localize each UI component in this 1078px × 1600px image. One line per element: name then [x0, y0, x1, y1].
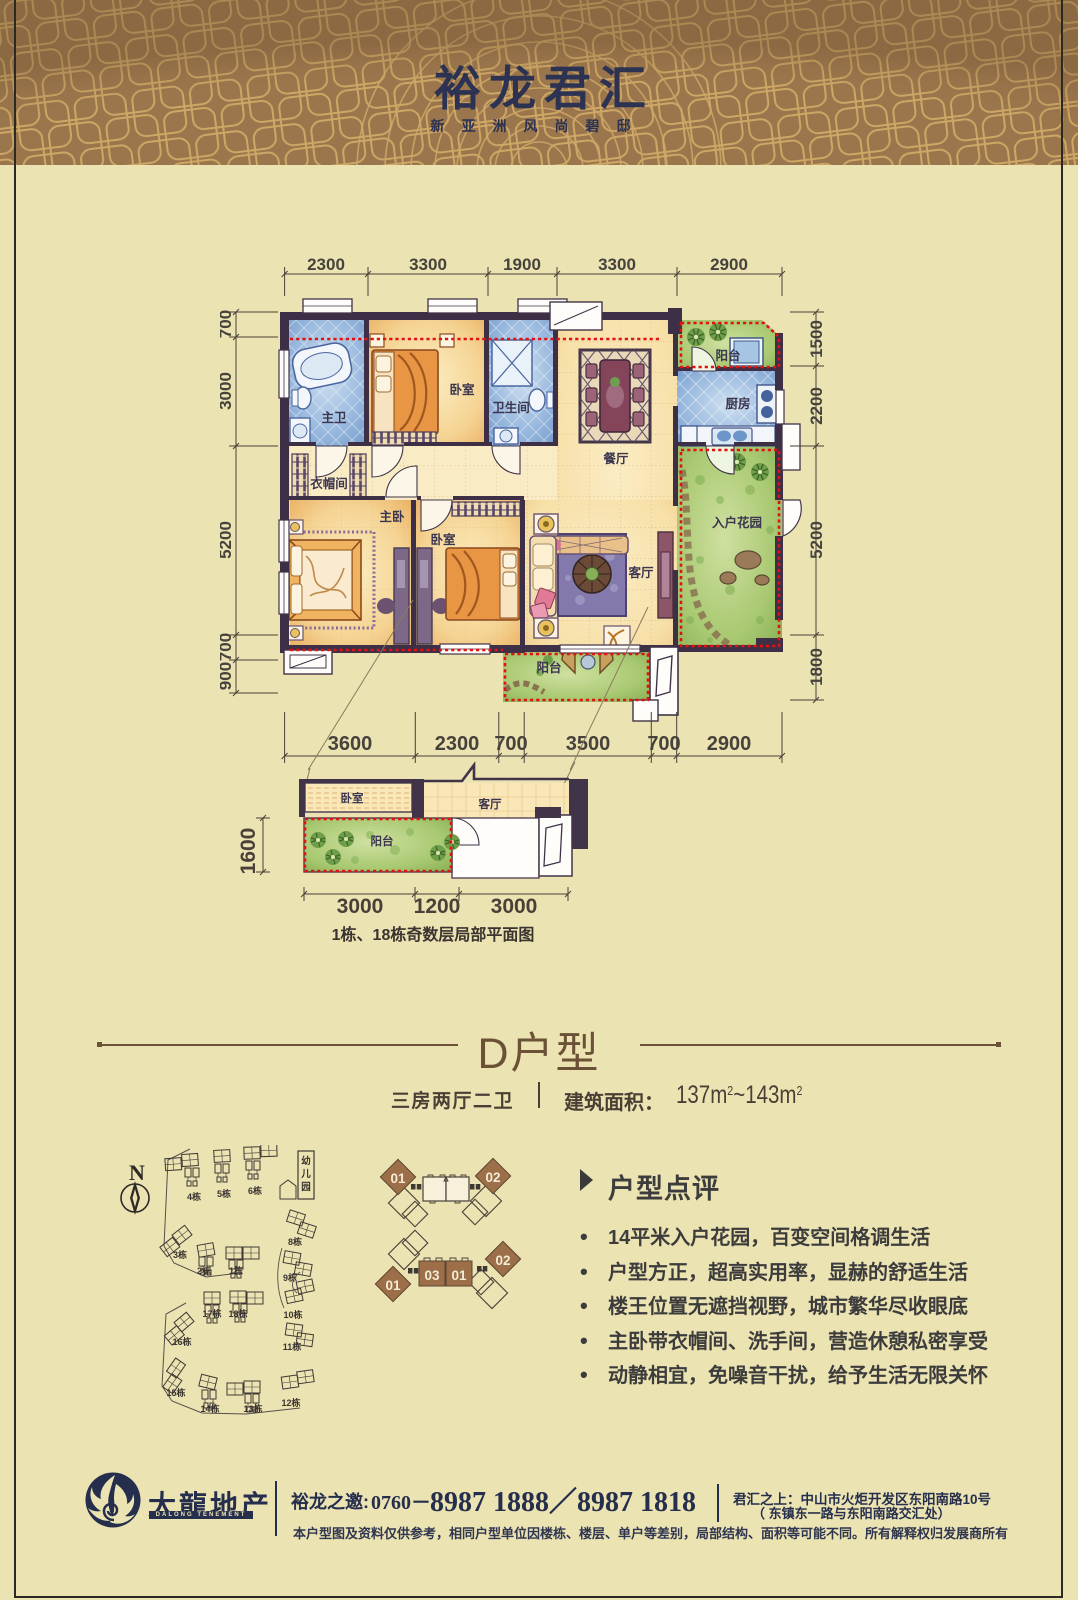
svg-text:衣帽间: 衣帽间 — [310, 476, 348, 491]
svg-text:3300: 3300 — [409, 255, 447, 274]
svg-text:17栋: 17栋 — [202, 1308, 221, 1319]
svg-text:2900: 2900 — [707, 733, 752, 755]
svg-text:3300: 3300 — [598, 255, 636, 274]
svg-text:900: 900 — [220, 662, 235, 690]
svg-text:卧室: 卧室 — [449, 382, 475, 397]
svg-text:18栋: 18栋 — [228, 1308, 247, 1319]
svg-text:1500: 1500 — [807, 320, 826, 358]
svg-text:700: 700 — [220, 633, 235, 661]
svg-text:3000: 3000 — [491, 895, 538, 918]
svg-text:2900: 2900 — [710, 255, 748, 274]
svg-text:阳台: 阳台 — [371, 834, 394, 848]
svg-text:主卫: 主卫 — [321, 410, 347, 425]
svg-text:02: 02 — [495, 1253, 510, 1268]
svg-text:8栋: 8栋 — [288, 1236, 302, 1247]
svg-text:N: N — [129, 1160, 145, 1185]
svg-text:1600: 1600 — [237, 828, 260, 875]
svg-text:1800: 1800 — [807, 648, 826, 686]
svg-text:1900: 1900 — [503, 255, 541, 274]
svg-text:厨房: 厨房 — [725, 396, 750, 411]
svg-text:5200: 5200 — [220, 521, 235, 559]
svg-text:客厅: 客厅 — [478, 797, 502, 811]
svg-text:3栋: 3栋 — [173, 1249, 187, 1260]
svg-text:12栋: 12栋 — [281, 1397, 300, 1408]
svg-text:700: 700 — [220, 310, 235, 338]
svg-text:卫生间: 卫生间 — [492, 400, 530, 415]
svg-text:03: 03 — [424, 1268, 440, 1283]
svg-text:阳台: 阳台 — [715, 348, 740, 363]
svg-text:02: 02 — [485, 1170, 500, 1185]
svg-text:2200: 2200 — [807, 387, 826, 425]
svg-text:01: 01 — [385, 1278, 401, 1293]
svg-text:5200: 5200 — [807, 521, 826, 559]
svg-text:2栋: 2栋 — [197, 1265, 211, 1276]
svg-text:幼: 幼 — [301, 1155, 311, 1167]
svg-text:客厅: 客厅 — [627, 565, 654, 580]
svg-text:1栋、18栋奇数层局部平面图: 1栋、18栋奇数层局部平面图 — [332, 925, 535, 944]
svg-text:01: 01 — [451, 1268, 467, 1283]
svg-text:阳台: 阳台 — [536, 660, 561, 675]
svg-text:餐厅: 餐厅 — [602, 451, 629, 466]
svg-text:15栋: 15栋 — [166, 1387, 185, 1398]
svg-text:3000: 3000 — [337, 895, 384, 918]
svg-text:1200: 1200 — [414, 895, 461, 918]
svg-text:园: 园 — [301, 1182, 311, 1193]
svg-text:13栋: 13栋 — [243, 1403, 262, 1414]
svg-text:4栋: 4栋 — [187, 1191, 201, 1202]
svg-text:5栋: 5栋 — [217, 1188, 231, 1199]
svg-text:卧室: 卧室 — [341, 791, 364, 805]
svg-text:11栋: 11栋 — [283, 1341, 302, 1352]
svg-text:儿: 儿 — [300, 1169, 311, 1180]
svg-text:3000: 3000 — [220, 372, 235, 410]
svg-text:16栋: 16栋 — [172, 1336, 191, 1347]
svg-text:2300: 2300 — [307, 255, 345, 274]
svg-text:入户花园: 入户花园 — [712, 515, 762, 530]
svg-text:01: 01 — [390, 1171, 406, 1186]
svg-text:1栋: 1栋 — [229, 1265, 243, 1276]
svg-text:6栋: 6栋 — [248, 1185, 262, 1196]
svg-text:14栋: 14栋 — [200, 1403, 219, 1414]
svg-text:10栋: 10栋 — [283, 1309, 302, 1320]
svg-text:主卧: 主卧 — [379, 509, 405, 524]
svg-text:卧室: 卧室 — [430, 532, 456, 547]
